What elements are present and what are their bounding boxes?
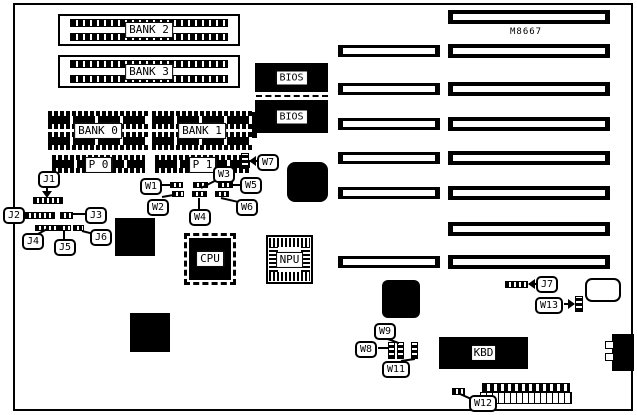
simm-socket-bank3: BANK 3 <box>58 55 240 88</box>
slot-contact <box>453 259 605 265</box>
isa-slot-long <box>448 255 610 269</box>
jumper-label-w8: W8 <box>355 341 377 358</box>
slot-contact <box>453 226 605 232</box>
isa-slot-short <box>338 83 440 95</box>
leader-line <box>73 213 85 215</box>
bios-divider-dashed <box>256 95 328 97</box>
npu-socket: NPU <box>266 235 313 284</box>
slot-contact <box>453 14 605 20</box>
isa-slot-long <box>448 117 610 131</box>
jumper-label-w4: W4 <box>189 209 211 226</box>
jumper-label-w11: W11 <box>382 361 410 378</box>
slot-contact <box>453 121 605 127</box>
leader-line <box>198 198 200 209</box>
jumper-block-j2 <box>25 212 55 219</box>
leader-line <box>378 347 388 349</box>
pin-strip <box>48 145 148 150</box>
p0-label: P 0 <box>85 156 113 172</box>
jumper-label-w5: W5 <box>240 177 262 194</box>
isa-slot-long <box>448 44 610 58</box>
jumper-label-j4: J4 <box>22 233 44 250</box>
isa-slot-long <box>448 10 610 24</box>
dip-ram-bank0: BANK 0 <box>48 111 148 151</box>
jumper-block-j5 <box>59 225 71 231</box>
dip-ram-bank1: BANK 1 <box>152 111 252 151</box>
motherboard-diagram: M8667 BANK 2 BANK 3 BANK 0 BANK 1 P 0 <box>0 0 637 415</box>
jumper-label-j1: J1 <box>38 171 60 188</box>
simm-socket-bank2: BANK 2 <box>58 14 240 46</box>
slot-contact <box>343 48 435 54</box>
isa-slot-short <box>338 187 440 199</box>
slot-contact <box>343 86 435 92</box>
jumper-block-j1 <box>33 197 63 204</box>
keyboard-controller-chip: KBD <box>439 337 528 369</box>
keyboard-din-connector <box>612 334 634 371</box>
jumper-label-w3: W3 <box>213 166 235 183</box>
ic-chip <box>287 162 328 202</box>
connector-notch <box>605 341 614 349</box>
jumper-block-w9 <box>397 342 404 359</box>
jumper-label-j3: J3 <box>85 207 107 224</box>
ic-chip <box>130 313 170 352</box>
bank1-label: BANK 1 <box>178 123 226 139</box>
cpu-label: CPU <box>196 251 224 267</box>
ic-chip <box>382 280 420 318</box>
leader-line <box>564 303 574 305</box>
slot-contact <box>453 190 605 196</box>
arrow-down <box>42 191 52 198</box>
jumper-label-w9: W9 <box>374 323 396 340</box>
pin-strip <box>152 145 252 150</box>
bank0-label: BANK 0 <box>74 123 122 139</box>
cpu-chip: CPU <box>189 238 231 280</box>
jumper-block-w11 <box>411 342 418 359</box>
parity-row-p0: P 0 <box>52 155 145 174</box>
slot-contact <box>343 121 435 127</box>
connector-notch <box>605 353 614 361</box>
isa-slot-long <box>448 186 610 200</box>
kbd-label: KBD <box>472 346 496 360</box>
jumper-label-w13: W13 <box>535 297 563 314</box>
isa-slot-long <box>448 82 610 96</box>
model-number: M8667 <box>510 27 542 37</box>
isa-slot-short <box>338 118 440 130</box>
jumper-block-w1 <box>170 182 183 188</box>
ic-chip <box>115 218 155 256</box>
leader-line <box>161 184 170 186</box>
pin-grid <box>269 272 310 281</box>
jumper-block-w4 <box>192 191 207 197</box>
slot-contact <box>343 155 435 161</box>
isa-slot-long <box>448 222 610 236</box>
slot-contact <box>453 155 605 161</box>
slot-contact <box>453 86 605 92</box>
jumper-label-j6: J6 <box>90 229 112 246</box>
connector-pins <box>482 383 570 392</box>
jumper-block-j7 <box>505 281 528 288</box>
jumper-block-w7 <box>241 153 249 169</box>
jumper-block-w8 <box>388 342 395 359</box>
jumper-block-j3 <box>60 212 73 219</box>
slot-contact <box>453 48 605 54</box>
isa-slot-long <box>448 151 610 165</box>
bios-chip-bottom: BIOS <box>255 100 328 133</box>
parity-row-p1: P 1 <box>155 155 250 174</box>
jumper-block-w2 <box>172 191 184 197</box>
bios-top-label: BIOS <box>275 70 307 85</box>
jumper-block-w13 <box>575 296 583 312</box>
jumper-label-j2: J2 <box>3 207 25 224</box>
jumper-label-j5: J5 <box>54 239 76 256</box>
bank3-label: BANK 3 <box>125 63 173 79</box>
isa-slot-short <box>338 256 440 268</box>
isa-slot-short <box>338 152 440 164</box>
jumper-label-w2: W2 <box>147 199 169 216</box>
pin-grid <box>269 238 310 247</box>
battery <box>585 278 621 302</box>
bank2-label: BANK 2 <box>125 22 173 38</box>
npu-label: NPU <box>276 251 304 267</box>
jumper-label-w6: W6 <box>236 199 258 216</box>
bios-bottom-label: BIOS <box>275 109 307 124</box>
slot-contact <box>343 259 435 265</box>
jumper-label-w1: W1 <box>140 178 162 195</box>
jumper-label-w12: W12 <box>469 395 497 412</box>
jumper-label-j7: J7 <box>536 276 558 293</box>
bios-chip-top: BIOS <box>255 63 328 92</box>
slot-contact <box>343 190 435 196</box>
jumper-label-w7: W7 <box>257 154 279 171</box>
jumper-block-w6 <box>215 191 229 197</box>
isa-slot-short <box>338 45 440 57</box>
